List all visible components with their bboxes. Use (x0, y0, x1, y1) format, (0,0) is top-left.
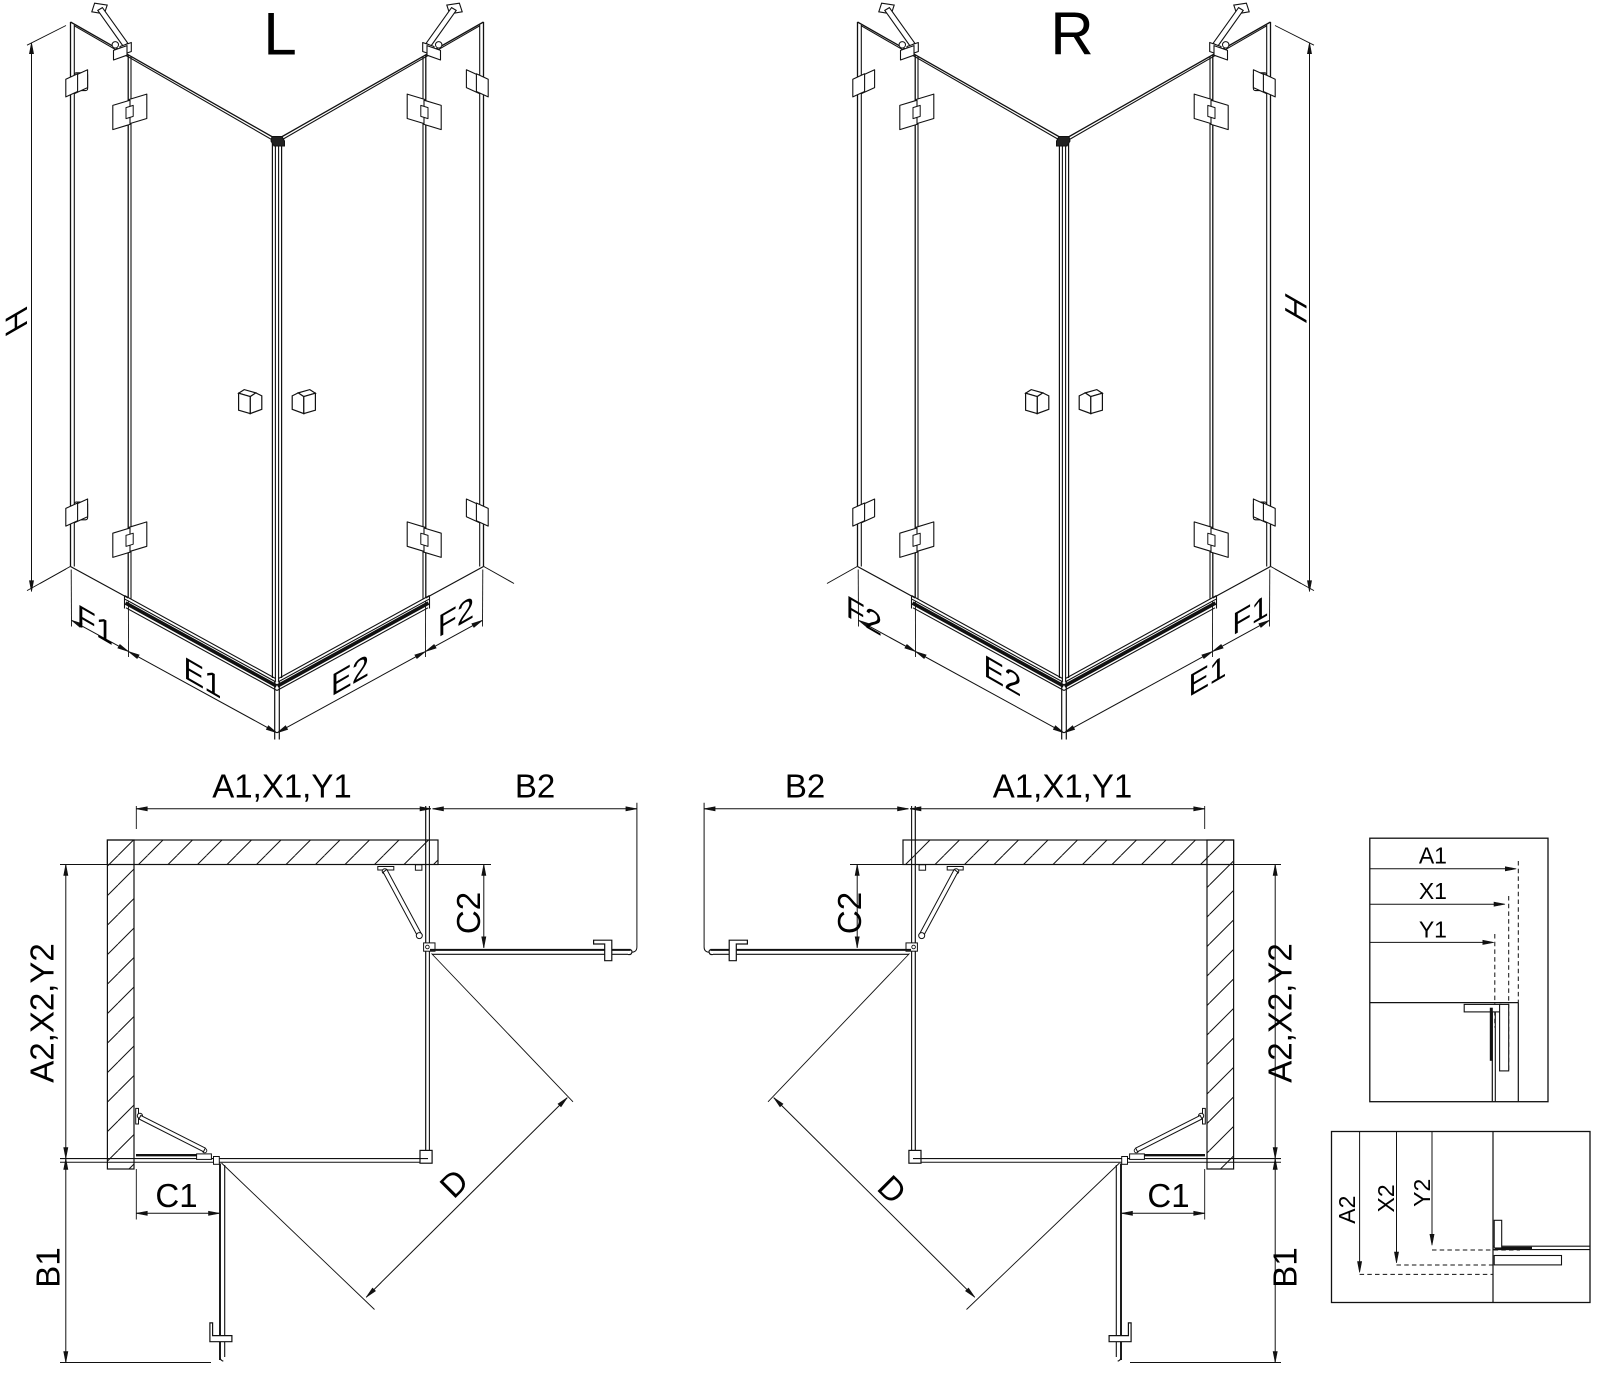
svg-text:C2: C2 (831, 892, 868, 934)
svg-text:C1: C1 (1147, 1177, 1189, 1214)
svg-text:R: R (1050, 1, 1093, 68)
svg-text:B1: B1 (1267, 1247, 1304, 1287)
svg-text:A1: A1 (1419, 843, 1447, 869)
svg-text:A2: A2 (1334, 1196, 1360, 1224)
svg-text:A1,X1,Y1: A1,X1,Y1 (993, 768, 1132, 805)
svg-text:B2: B2 (515, 768, 555, 805)
svg-text:C2: C2 (450, 892, 487, 934)
svg-text:C1: C1 (155, 1177, 197, 1214)
svg-text:L: L (263, 1, 296, 68)
svg-text:Y1: Y1 (1419, 917, 1447, 943)
svg-text:B2: B2 (785, 768, 825, 805)
svg-text:B1: B1 (30, 1247, 67, 1287)
svg-text:X1: X1 (1419, 878, 1447, 904)
svg-text:X2: X2 (1373, 1184, 1399, 1212)
svg-text:Y2: Y2 (1409, 1179, 1435, 1207)
svg-text:A2,X2,Y2: A2,X2,Y2 (24, 943, 61, 1082)
svg-text:A1,X1,Y1: A1,X1,Y1 (212, 768, 351, 805)
svg-text:A2,X2,Y2: A2,X2,Y2 (1262, 943, 1299, 1082)
